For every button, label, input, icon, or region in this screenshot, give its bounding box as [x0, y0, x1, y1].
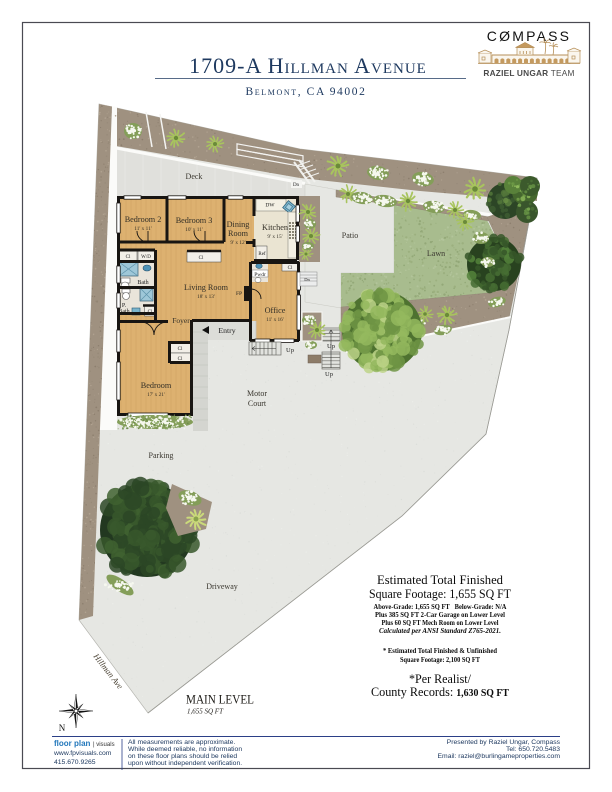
svg-text:Cl: Cl: [199, 256, 204, 261]
svg-text:Up: Up: [286, 347, 294, 354]
svg-text:9' x 12': 9' x 12': [230, 240, 245, 246]
svg-text:Dn: Dn: [293, 183, 300, 188]
svg-text:Up: Up: [327, 343, 335, 350]
svg-text:Living Room: Living Room: [184, 283, 229, 292]
svg-text:Cl: Cl: [178, 347, 183, 352]
svg-text:Belmont, CA 94002: Belmont, CA 94002: [246, 86, 367, 98]
svg-text:Bedroom: Bedroom: [141, 381, 172, 390]
svg-text:Kitchen: Kitchen: [262, 223, 288, 232]
svg-text:11' x 16': 11' x 16': [266, 317, 284, 323]
svg-text:1709-A Hillman Avenue: 1709-A Hillman Avenue: [189, 53, 427, 78]
svg-text:RAZIEL UNGAR TEAM: RAZIEL UNGAR TEAM: [483, 68, 574, 78]
svg-text:Bedroom 3: Bedroom 3: [176, 216, 213, 225]
svg-text:Bath: Bath: [137, 280, 148, 286]
svg-text:Dn: Dn: [304, 277, 310, 282]
svg-text:9' x 15': 9' x 15': [267, 234, 282, 240]
svg-text:FP: FP: [236, 291, 242, 297]
svg-text:W/D: W/D: [141, 255, 151, 260]
svg-text:Cl: Cl: [126, 255, 131, 260]
svg-text:Cl: Cl: [288, 266, 293, 271]
svg-text:17' x 21': 17' x 21': [147, 392, 165, 398]
svg-text:Room: Room: [228, 229, 249, 238]
svg-text:CØMPASS: CØMPASS: [487, 28, 571, 44]
svg-text:Dining: Dining: [227, 220, 250, 229]
svg-text:Bedroom 2: Bedroom 2: [125, 215, 162, 224]
svg-text:DW: DW: [265, 203, 275, 209]
svg-text:Foyer: Foyer: [172, 316, 190, 325]
svg-text:Ref: Ref: [258, 252, 266, 257]
svg-text:11' x 11': 11' x 11': [134, 226, 151, 232]
svg-text:18' x 13': 18' x 13': [197, 294, 215, 300]
svg-text:10' x 11': 10' x 11': [185, 227, 203, 233]
svg-text:Office: Office: [265, 306, 286, 315]
svg-text:Pwdr: Pwdr: [254, 272, 266, 278]
svg-text:Up: Up: [325, 371, 333, 378]
svg-text:Entry: Entry: [218, 326, 235, 335]
